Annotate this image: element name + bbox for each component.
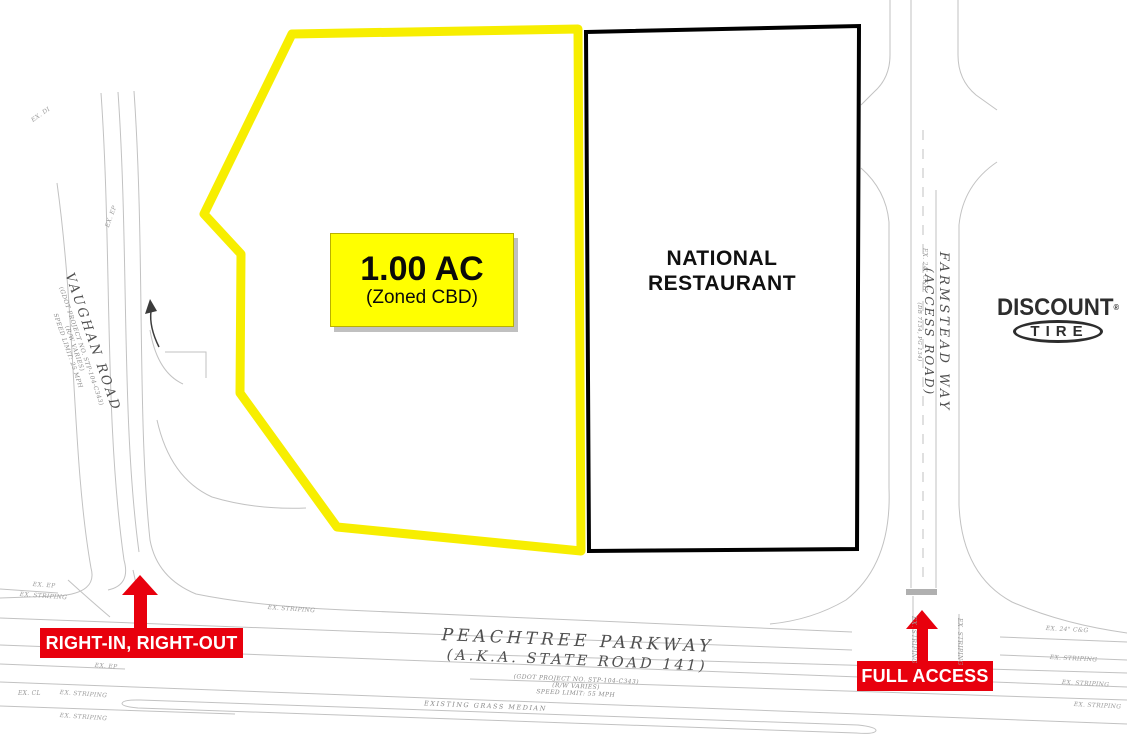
discount-tire-logo: DISCOUNT® TIRE [991,297,1125,343]
road-name-text: FARMSTEAD WAY [936,252,951,413]
logo-name-text: DISCOUNT [997,294,1114,321]
logo-sub-text: TIRE [1013,320,1102,343]
survey-annotation: EX. CL [18,690,41,697]
peachtree-parkway-label: PEACHTREE PARKWAY (A.K.A. STATE ROAD 141… [439,625,714,703]
survey-annotation: EX. EP [95,662,118,671]
right-in-arrow-shaft [134,593,147,629]
restaurant-parcel-label: NATIONAL RESTAURANT [634,246,810,296]
registered-mark: ® [1114,303,1119,312]
logo-wordmark: DISCOUNT® [996,297,1121,319]
parcel-zoning-text: (Zoned CBD) [366,287,478,309]
right-in-right-out-callout: RIGHT-IN, RIGHT-OUT [40,628,243,658]
parcel-area-label-box: 1.00 AC (Zoned CBD) [330,233,514,327]
crosswalk-bar [906,589,937,595]
survey-annotation: EX. 24" C&G [921,248,928,291]
survey-annotation: EX. STRIPING [910,616,917,664]
site-plan: 1.00 AC (Zoned CBD) NATIONAL RESTAURANT … [0,0,1127,734]
right-in-arrow-icon [122,575,158,595]
survey-annotation: EX. EP [33,581,56,590]
full-access-callout: FULL ACCESS [857,661,993,691]
parcel-area-text: 1.00 AC [360,251,483,287]
full-access-arrow-shaft [917,628,928,662]
survey-annotation: EX. STRIPING [956,618,963,666]
